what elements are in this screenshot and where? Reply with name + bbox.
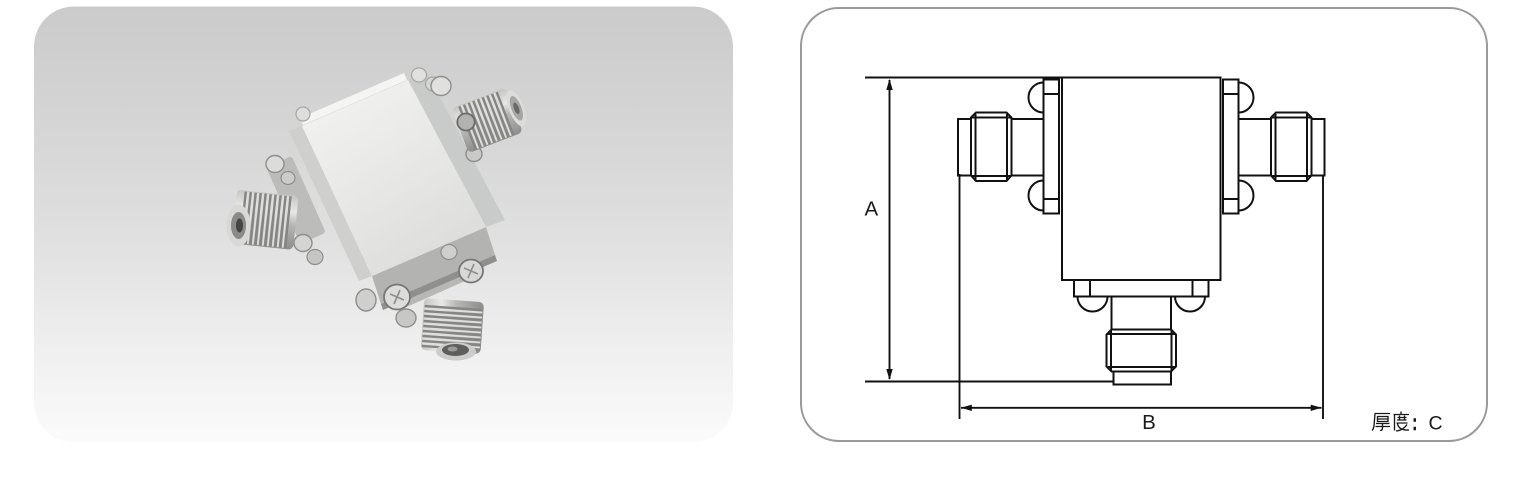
svg-text:B: B	[1142, 411, 1156, 434]
svg-text:A: A	[864, 198, 878, 221]
svg-text:C: C	[1429, 413, 1443, 435]
